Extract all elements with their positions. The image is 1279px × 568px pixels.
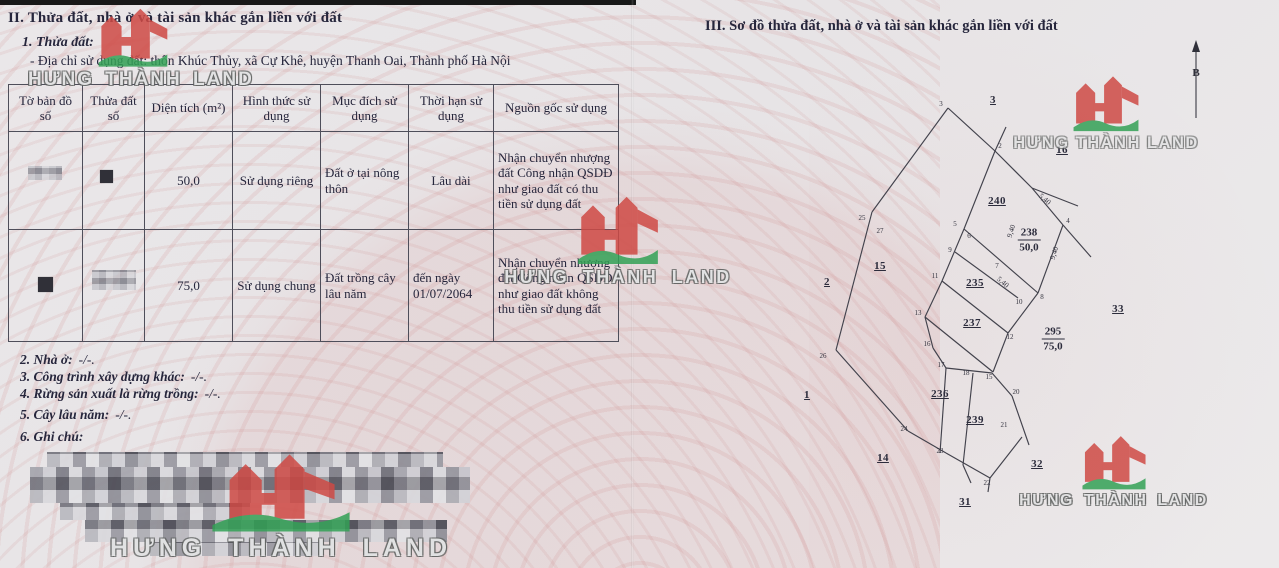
cell-parcel-no-redacted xyxy=(83,132,145,230)
map-boundary-line xyxy=(925,317,993,372)
map-vertex-number: 15 xyxy=(986,373,993,381)
map-boundary-line xyxy=(1038,225,1063,293)
map-parcel-label: 237 xyxy=(963,317,981,329)
col-header-use-form: Hình thức sử dụng xyxy=(233,85,321,132)
map-boundary-line xyxy=(925,317,933,348)
item-label: 4. Rừng sản xuất là rừng trồng: xyxy=(20,386,199,401)
item-other-constructions: 3. Công trình xây dựng khác:-/-. xyxy=(20,369,207,385)
redacted-value xyxy=(38,277,53,292)
map-vertex-number: 27 xyxy=(877,227,884,235)
map-vertex-number: 23 xyxy=(937,447,944,455)
map-parcel-label: 239 xyxy=(966,414,984,426)
cell-use-term: Lâu dài xyxy=(409,132,494,230)
map-boundary-line xyxy=(1032,188,1063,225)
cell-use-term: đến ngày 01/07/2064 xyxy=(409,230,494,342)
map-vertex-number: 8 xyxy=(1040,293,1044,301)
map-parcel-label: 240 xyxy=(988,195,1006,207)
map-boundary-line xyxy=(963,373,973,465)
table-header-row: Tờ bản đồ số Thửa đất số Diện tích (m²) … xyxy=(9,85,619,132)
map-vertex-number: 4 xyxy=(1066,217,1070,225)
watermark: HƯNG THÀNH LAND xyxy=(1006,70,1206,153)
map-boundary-line xyxy=(1008,293,1038,333)
map-vertex-number: 11 xyxy=(932,272,939,280)
parcel-area: 50,0 xyxy=(1018,241,1041,254)
map-vertex-number: 22 xyxy=(984,479,991,487)
map-boundary-line xyxy=(872,108,948,212)
col-header-parcel-no: Thửa đất số xyxy=(83,85,145,132)
map-vertex-number: 25 xyxy=(859,214,866,222)
land-certificate-page: II. Thửa đất, nhà ở và tài sản khác gắn … xyxy=(0,0,1279,568)
cell-map-sheet-redacted xyxy=(9,132,83,230)
map-edge-length-label: 9,40 xyxy=(1005,223,1018,238)
redacted-value xyxy=(28,166,62,180)
map-boundary-line xyxy=(1063,225,1091,257)
map-boundary-line xyxy=(948,108,995,151)
watermark-text: HƯNG THÀNH LAND xyxy=(83,534,479,563)
item-label: 2. Nhà ở: xyxy=(20,352,73,367)
parcel-address: - Địa chỉ sử dụng đất: thôn Khúc Thủy, x… xyxy=(30,53,630,69)
col-header-map-sheet: Tờ bản đồ số xyxy=(9,85,83,132)
map-boundary-line xyxy=(964,229,1038,293)
north-arrow-head xyxy=(1192,40,1200,52)
map-vertex-number: 3 xyxy=(939,100,943,108)
map-vertex-number: 21 xyxy=(1001,421,1008,429)
redacted-note-line xyxy=(150,542,320,556)
map-boundary-line xyxy=(995,151,1032,188)
parcel-area: 75,0 xyxy=(1042,340,1065,353)
map-boundary-line xyxy=(940,368,946,453)
section2-title: II. Thửa đất, nhà ở và tài sản khác gắn … xyxy=(8,10,342,27)
map-parcel-label: 32 xyxy=(1031,458,1043,470)
item-label: 6. Ghi chú: xyxy=(20,429,83,444)
map-parcel-label: 14 xyxy=(877,452,889,464)
map-vertex-number: 5 xyxy=(953,220,957,228)
map-parcel-label: 16 xyxy=(1056,144,1068,156)
watermark-text: HƯNG THÀNH LAND xyxy=(1016,492,1211,510)
map-parcel-label: 1 xyxy=(804,389,810,401)
col-header-use-origin: Nguồn gốc sử dụng xyxy=(494,85,619,132)
cell-use-purpose: Đất trồng cây lâu năm xyxy=(321,230,409,342)
item-notes: 6. Ghi chú: xyxy=(20,429,89,445)
redacted-note-line xyxy=(85,520,447,542)
map-boundary-line xyxy=(946,368,992,373)
section2-subsection-label: 1. Thửa đất: xyxy=(22,35,94,51)
col-header-area: Diện tích (m²) xyxy=(145,85,233,132)
item-perennial-trees: 5. Cây lâu năm:-/-. xyxy=(20,407,131,423)
item-house: 2. Nhà ở:-/-. xyxy=(20,352,95,368)
map-boundary-line xyxy=(908,431,946,453)
scan-edge-shadow xyxy=(0,0,636,5)
map-parcel-label: 3 xyxy=(990,94,996,106)
cell-area: 50,0 xyxy=(145,132,233,230)
map-vertex-number: 9 xyxy=(948,246,952,254)
map-boundary-line xyxy=(964,151,995,229)
item-label: 5. Cây lâu năm: xyxy=(20,407,109,422)
item-value: -/-. xyxy=(79,352,95,367)
cell-area: 75,0 xyxy=(145,230,233,342)
map-parcel-label: 15 xyxy=(874,260,886,272)
map-boundary-line xyxy=(925,281,942,317)
map-boundary-line xyxy=(1032,188,1078,206)
parcel-number: 238 xyxy=(1018,227,1041,241)
item-value: -/-. xyxy=(191,369,207,384)
map-boundary-line xyxy=(963,465,971,483)
map-boundary-line xyxy=(836,212,872,350)
item-production-forest: 4. Rừng sản xuất là rừng trồng:-/-. xyxy=(20,386,221,402)
map-vertex-number: 12 xyxy=(1007,333,1014,341)
watermark: HƯNG THÀNH LAND xyxy=(83,448,479,563)
map-edge-length-label: 5,40 xyxy=(1037,191,1053,206)
map-parcel-label: 2 xyxy=(824,276,830,288)
map-vertex-number: 2 xyxy=(998,142,1002,150)
hung-thanh-land-logo-icon xyxy=(1080,430,1148,492)
cell-use-origin: Nhận chuyển nhượng đất Công nhận QSDĐ nh… xyxy=(494,230,619,342)
parcel-number: 295 xyxy=(1042,326,1065,340)
map-boundary-line xyxy=(993,333,1008,372)
redacted-value xyxy=(100,170,113,183)
map-boundary-line xyxy=(1012,396,1029,445)
cell-use-form: Sử dụng chung xyxy=(233,230,321,342)
map-parcel-area-label: 23850,0 xyxy=(1018,227,1041,254)
cell-use-origin: Nhận chuyển nhượng đất Công nhận QSDĐ nh… xyxy=(494,132,619,230)
map-vertex-number: 13 xyxy=(915,309,922,317)
redacted-note-line xyxy=(60,503,250,520)
section3-title: III. Sơ đồ thửa đất, nhà ở và tài sản kh… xyxy=(705,18,1058,35)
watermark-text: HƯNG THÀNH LAND xyxy=(1006,134,1206,153)
map-background-tint xyxy=(809,0,1279,568)
map-boundary-line xyxy=(988,478,990,492)
map-boundary-line xyxy=(992,373,1012,396)
map-vertex-number: 17 xyxy=(938,361,945,369)
map-vertex-number: 6 xyxy=(967,232,971,240)
map-boundary-line xyxy=(955,252,1018,298)
map-edge-length-label: 5,40 xyxy=(995,274,1011,289)
land-parcel-table: Tờ bản đồ số Thửa đất số Diện tích (m²) … xyxy=(8,84,619,342)
watermark: HƯNG THÀNH LAND xyxy=(1016,430,1211,510)
item-value: -/-. xyxy=(205,386,221,401)
hung-thanh-land-logo-icon xyxy=(1071,70,1141,134)
map-parcel-label: 235 xyxy=(966,277,984,289)
map-vertex-number: 10 xyxy=(1016,298,1023,306)
map-boundary-line xyxy=(836,350,908,431)
map-parcel-label: 236 xyxy=(931,388,949,400)
redacted-note-line xyxy=(47,452,443,467)
page-fold-line xyxy=(631,0,634,568)
map-vertex-number: 18 xyxy=(963,369,970,377)
redacted-value xyxy=(92,270,136,290)
north-arrow-label: B xyxy=(1192,67,1199,79)
hung-thanh-land-logo-icon xyxy=(206,448,356,534)
item-label: 3. Công trình xây dựng khác: xyxy=(20,369,185,384)
map-boundary-line xyxy=(942,281,1008,333)
map-boundary-line xyxy=(995,127,1006,151)
map-boundary-line xyxy=(946,453,990,478)
map-parcel-label: 33 xyxy=(1112,303,1124,315)
map-vertex-number: 24 xyxy=(901,425,908,433)
map-edge-length-label: 9,40 xyxy=(1048,245,1061,260)
col-header-use-term: Thời hạn sử dụng xyxy=(409,85,494,132)
map-vertex-number: 7 xyxy=(995,262,999,270)
map-vertex-number: 16 xyxy=(924,340,931,348)
map-parcel-label: 31 xyxy=(959,496,971,508)
map-boundary-line xyxy=(990,437,1022,478)
cell-use-purpose: Đất ở tại nông thôn xyxy=(321,132,409,230)
col-header-use-purpose: Mục đích sử dụng xyxy=(321,85,409,132)
map-vertex-number: 26 xyxy=(820,352,827,360)
redacted-note-line xyxy=(30,467,470,503)
cell-use-form: Sử dụng riêng xyxy=(233,132,321,230)
map-vertex-number: 20 xyxy=(1013,388,1020,396)
map-boundary-line xyxy=(933,348,946,368)
item-value: -/-. xyxy=(115,407,131,422)
map-parcel-area-label: 29575,0 xyxy=(1042,326,1065,353)
map-boundary-line xyxy=(942,229,964,281)
